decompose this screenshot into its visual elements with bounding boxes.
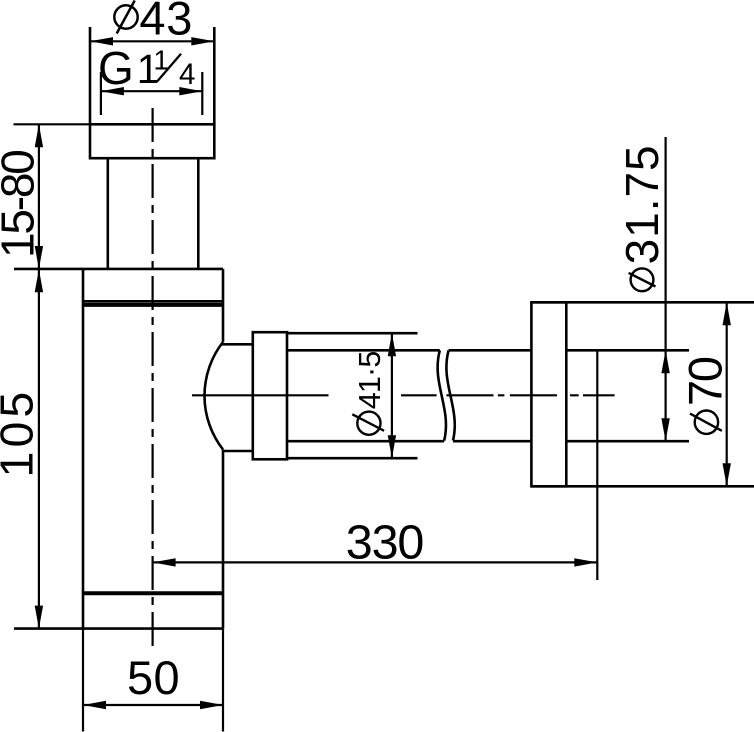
svg-text:15-80: 15-80 bbox=[0, 149, 44, 258]
svg-text:31.75: 31.75 bbox=[616, 145, 668, 264]
svg-text:70: 70 bbox=[679, 356, 732, 406]
svg-text:4: 4 bbox=[179, 58, 195, 91]
svg-text:G: G bbox=[98, 42, 134, 94]
svg-text:43: 43 bbox=[139, 0, 192, 45]
svg-text:41·5: 41·5 bbox=[353, 351, 387, 410]
svg-text:50: 50 bbox=[127, 651, 180, 704]
svg-text:330: 330 bbox=[346, 516, 425, 570]
svg-text:105: 105 bbox=[0, 392, 43, 478]
